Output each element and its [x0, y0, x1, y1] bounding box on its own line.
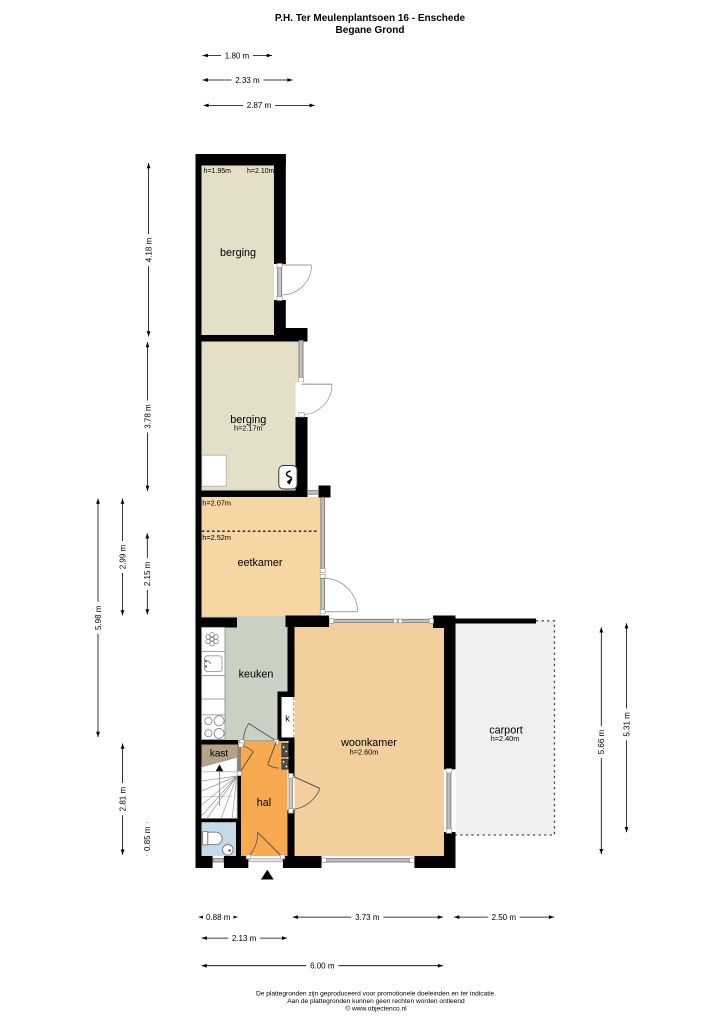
- svg-text:5.98 m: 5.98 m: [94, 605, 103, 630]
- svg-text:1.80 m: 1.80 m: [225, 51, 250, 60]
- svg-text:eetkamer: eetkamer: [237, 557, 282, 569]
- svg-text:h=2.40m: h=2.40m: [491, 734, 520, 743]
- svg-text:Begane Grond: Begane Grond: [336, 25, 405, 36]
- svg-text:3.73 m: 3.73 m: [355, 913, 380, 922]
- svg-text:berging: berging: [220, 247, 256, 259]
- svg-text:2.99 m: 2.99 m: [118, 544, 127, 569]
- svg-text:5.31 m: 5.31 m: [622, 712, 631, 737]
- svg-text:kast: kast: [210, 749, 229, 760]
- svg-text:3.78 m: 3.78 m: [143, 404, 152, 429]
- svg-text:2.87 m: 2.87 m: [247, 101, 272, 110]
- svg-text:2.15 m: 2.15 m: [143, 561, 152, 586]
- svg-text:h=1.95m: h=1.95m: [204, 168, 232, 175]
- svg-text:De plattegronden zijn geproduc: De plattegronden zijn geproduceerd voor …: [256, 991, 496, 998]
- svg-text:h=2.17m: h=2.17m: [234, 424, 263, 433]
- svg-text:k: k: [285, 714, 290, 724]
- svg-text:hal: hal: [257, 797, 271, 809]
- svg-text:2.81 m: 2.81 m: [118, 787, 127, 812]
- svg-text:0.88 m: 0.88 m: [206, 913, 231, 922]
- svg-text:keuken: keuken: [239, 669, 274, 681]
- svg-text:0.85 m: 0.85 m: [143, 826, 152, 851]
- svg-text:h=2.60m: h=2.60m: [350, 748, 379, 757]
- svg-text:2.33 m: 2.33 m: [235, 76, 260, 85]
- svg-text:2.13 m: 2.13 m: [232, 934, 257, 943]
- svg-text:© www.objectenco.nl: © www.objectenco.nl: [345, 1004, 407, 1012]
- svg-text:h=2.10m: h=2.10m: [247, 168, 275, 175]
- svg-text:4.18 m: 4.18 m: [144, 237, 153, 262]
- svg-text:2.50 m: 2.50 m: [492, 913, 517, 922]
- svg-text:h=2.07m: h=2.07m: [202, 499, 231, 508]
- svg-text:h=2.52m: h=2.52m: [202, 533, 231, 542]
- svg-text:6.00 m: 6.00 m: [310, 962, 335, 971]
- svg-text:5.66 m: 5.66 m: [597, 729, 606, 754]
- svg-text:P.H. Ter Meulenplantsoen 16 -: P.H. Ter Meulenplantsoen 16 - Enschede: [275, 13, 466, 24]
- svg-text:Aan de plattegronden kunnen ge: Aan de plattegronden kunnen geen rechten…: [287, 998, 465, 1005]
